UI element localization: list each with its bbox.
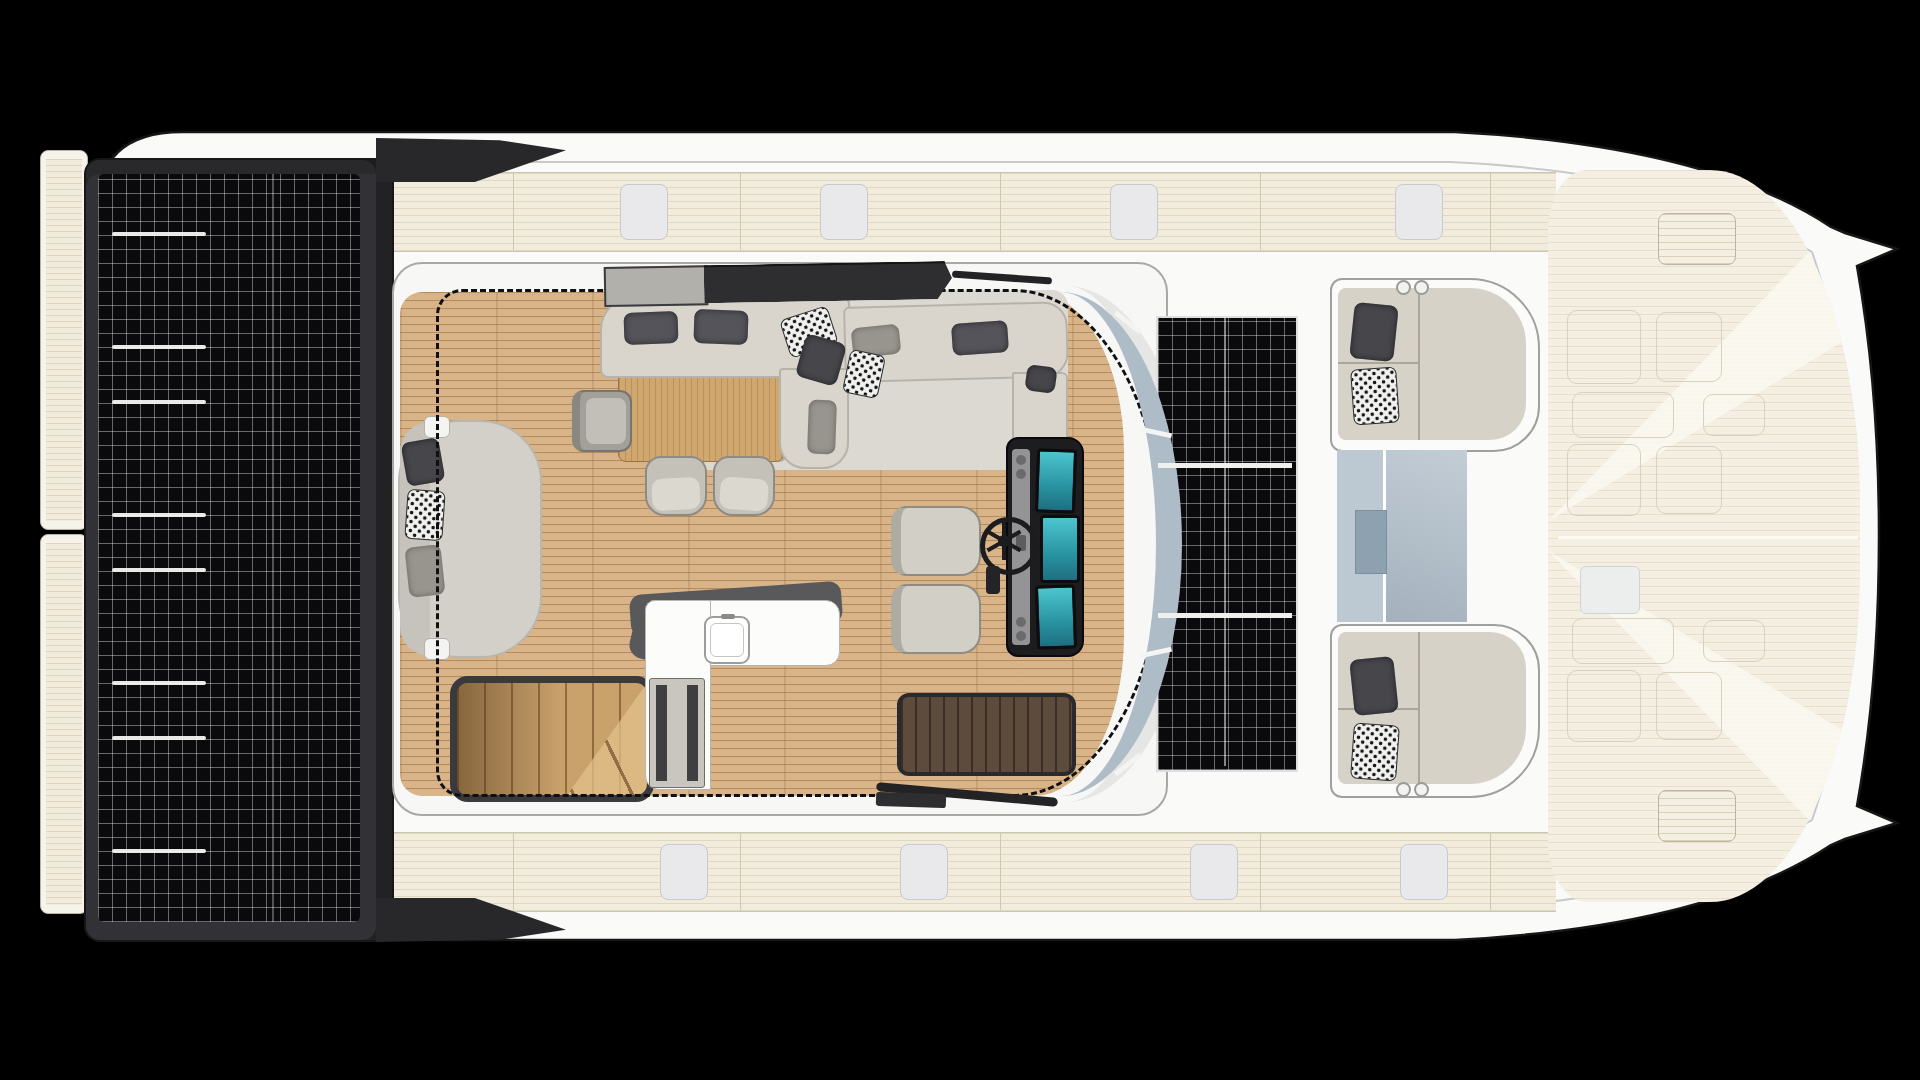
deck-hatch — [620, 184, 668, 240]
foredeck-hatch — [1656, 672, 1722, 740]
solar-bus-bar — [112, 513, 206, 517]
foredeck-hatch — [1658, 213, 1736, 265]
foredeck-hatch — [1567, 310, 1641, 384]
swim-platform-step — [40, 534, 88, 914]
side-deck-starboard — [386, 172, 1556, 252]
solar-module-separator — [1158, 463, 1292, 468]
deck-plank-divider — [513, 172, 514, 250]
solar-bus-bar — [112, 568, 206, 572]
chartplotter-screen — [1035, 448, 1077, 513]
deck-fitting — [1414, 782, 1429, 797]
skylight-inset-panel — [1355, 510, 1387, 574]
solar-bus-bar — [112, 345, 206, 349]
solar-bus-bar — [112, 736, 206, 740]
platform-planks — [46, 543, 82, 905]
foredeck-hatch — [1656, 446, 1722, 514]
foredeck-hatch — [1567, 670, 1641, 742]
cushion-seam — [1418, 632, 1420, 784]
fwd-pillow-dark — [1349, 302, 1399, 362]
throttle-lever — [986, 566, 1000, 594]
deck-plank-divider — [1000, 172, 1001, 250]
fwd-pillow-pattern — [1350, 722, 1400, 781]
sunroof-glass — [704, 261, 953, 303]
console-knob — [1016, 631, 1026, 641]
sunroof-track — [604, 265, 709, 307]
solar-bus-bar — [112, 849, 206, 853]
foredeck-hatch — [1567, 444, 1641, 516]
deck-fitting — [1396, 782, 1411, 797]
swim-platform-step — [40, 150, 88, 530]
cushion-seam — [1338, 362, 1418, 364]
cushion-seam — [1418, 288, 1420, 440]
wheel-hub — [998, 535, 1010, 547]
deck-plank-divider — [1260, 172, 1261, 250]
aft-solar-cells — [98, 174, 360, 922]
foredeck-hatch — [1572, 392, 1674, 438]
aft-solar-column-seam — [272, 174, 274, 922]
platform-planks — [46, 159, 82, 521]
deck-hatch — [900, 844, 948, 900]
foredeck-hatch — [1658, 790, 1736, 842]
deck-plank-divider — [740, 832, 741, 910]
foredeck-center-seam — [1558, 536, 1858, 539]
deck-hatch — [820, 184, 868, 240]
chartplotter-screen — [1035, 584, 1077, 649]
console-knob — [1016, 617, 1026, 627]
solar-bus-bar — [112, 681, 206, 685]
console-knob — [1016, 455, 1026, 465]
coachroof-solar-seam — [1224, 318, 1226, 766]
foredeck-hatch — [1703, 394, 1765, 436]
fwd-pillow-pattern — [1350, 366, 1400, 425]
fwd-pillow-dark — [1349, 656, 1399, 716]
solar-module-separator — [1158, 613, 1292, 618]
deck-hatch — [1400, 844, 1448, 900]
deck-hatch — [1110, 184, 1158, 240]
solar-bus-bar — [112, 232, 206, 236]
deck-plank-divider — [1490, 172, 1491, 250]
deck-plank-divider — [740, 172, 741, 250]
skylight-pane-main — [1386, 450, 1467, 622]
solar-bus-bar — [112, 400, 206, 404]
deck-plank-divider — [1490, 832, 1491, 910]
fwd-skylight — [1337, 450, 1467, 622]
chartplotter-screen — [1040, 515, 1080, 583]
deck-plank-divider — [1000, 832, 1001, 910]
foredeck-hatch — [1572, 618, 1674, 664]
sunroof-panel — [604, 261, 953, 303]
deck-fitting — [1414, 280, 1429, 295]
deck-hatch — [1395, 184, 1443, 240]
foredeck-hatch — [1656, 312, 1722, 382]
deck-hatch — [1190, 844, 1238, 900]
roof-rail-base — [876, 792, 946, 808]
foredeck-hatch — [1580, 566, 1640, 614]
side-deck-port — [386, 832, 1556, 912]
foredeck-hatch — [1703, 620, 1765, 662]
deck-plank-divider — [1260, 832, 1261, 910]
console-knob — [1016, 469, 1026, 479]
deck-fitting — [1396, 280, 1411, 295]
deck-plank-divider — [513, 832, 514, 910]
deck-plan-canvas — [0, 0, 1920, 1080]
deck-hatch — [660, 844, 708, 900]
